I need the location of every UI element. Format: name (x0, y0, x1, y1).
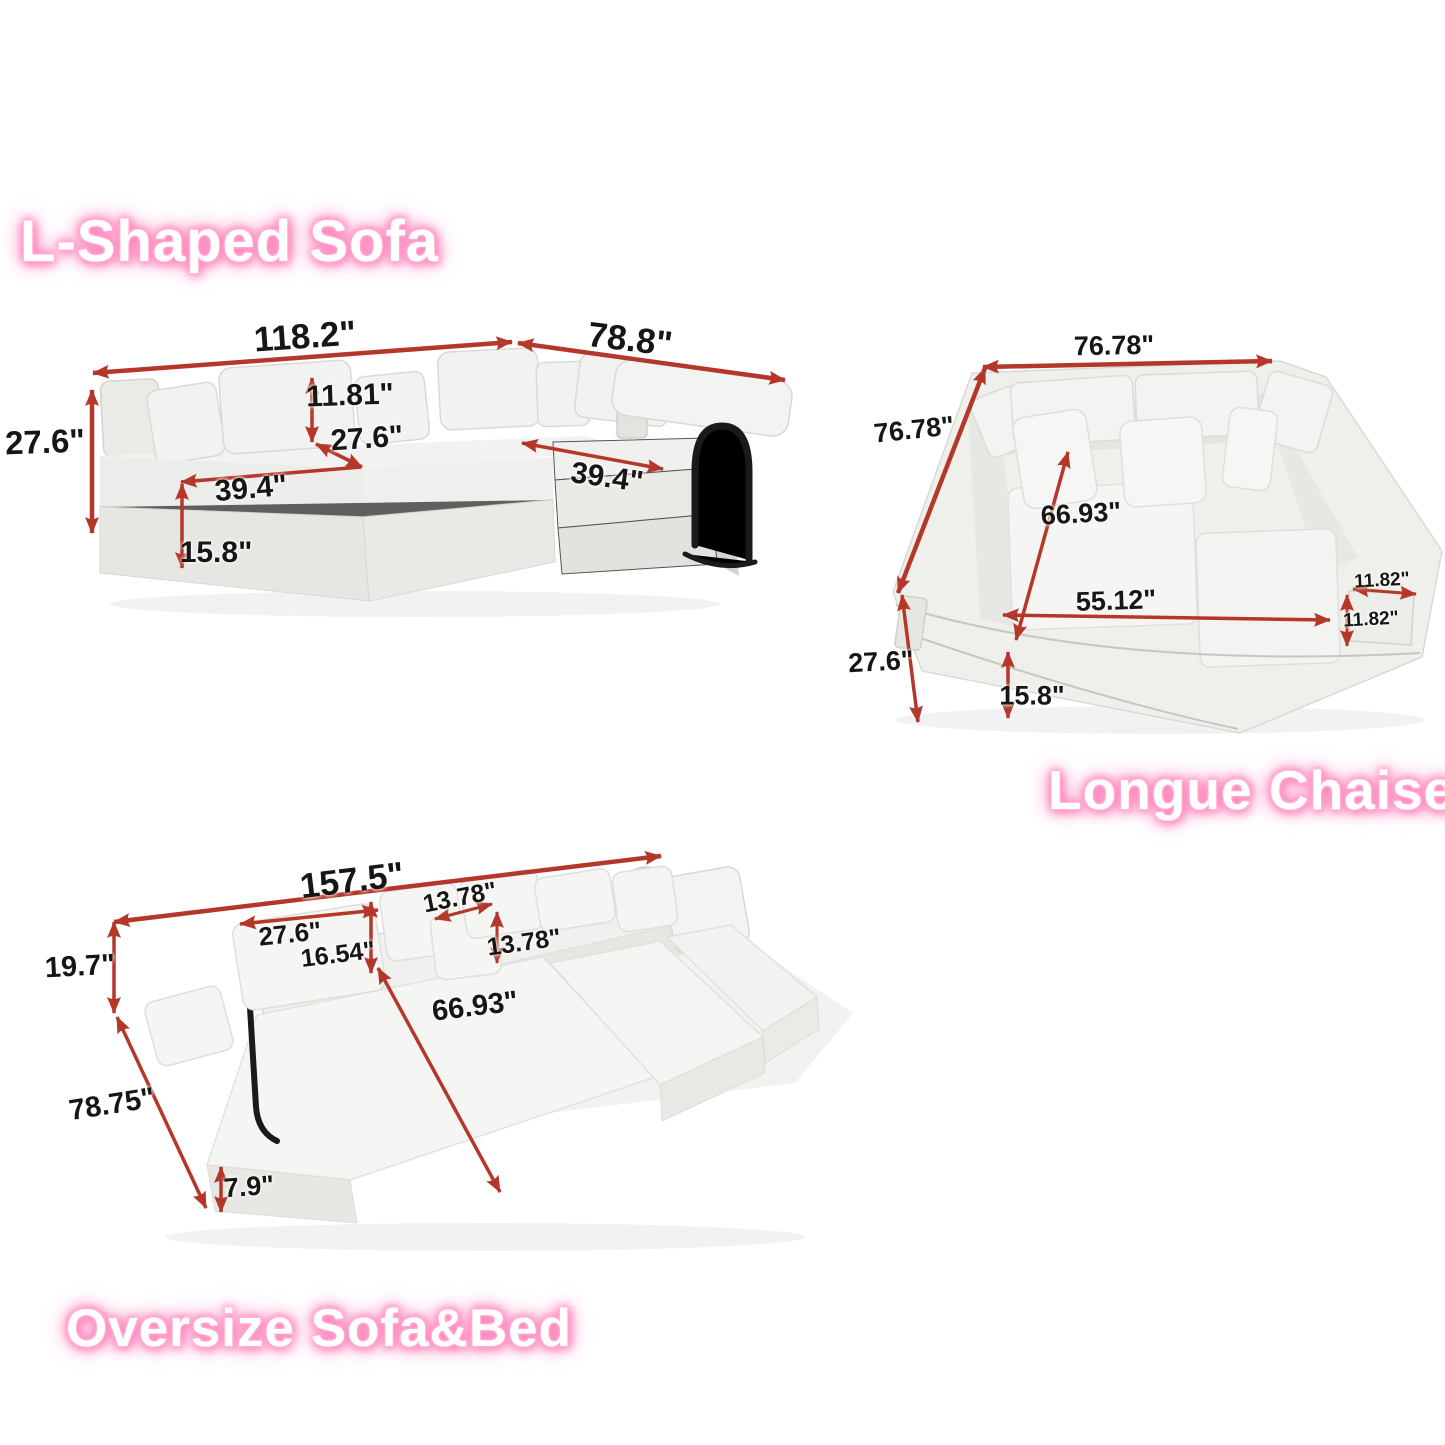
dim-c-inner-diagonal: 66.93" (1040, 496, 1122, 531)
metal-handle (695, 426, 749, 560)
dim-c-total-width: 76.78" (1074, 330, 1155, 362)
sofa-drawing (893, 361, 1442, 734)
section-title-oversize-sofa-bed: Oversize Sofa&Bed (66, 1298, 572, 1359)
dim-c-base-height: 15.8" (999, 681, 1064, 712)
dim-l-total-width: 118.2" (253, 313, 358, 360)
oversize-sofa-bed-illustration (95, 845, 905, 1265)
dim-l-base-height: 15.8" (180, 536, 253, 570)
dim-l-overall-height: 27.6" (4, 422, 85, 463)
dim-c-inner-width: 55.12" (1075, 584, 1156, 618)
dim-o-back-height: 19.7" (44, 949, 116, 986)
product-dimension-sheet: L-Shaped Sofa (0, 0, 1445, 1445)
dim-l-seat-depth: 27.6" (330, 420, 405, 459)
dim-c-overall-height: 27.6" (848, 645, 915, 679)
section-title-l-shaped-sofa: L-Shaped Sofa (20, 208, 439, 275)
sofa-drawing (100, 347, 794, 617)
dim-l-seat-width: 39.4" (213, 469, 288, 509)
section-title-longue-chaise: Longue Chaise (1048, 758, 1445, 822)
l-shaped-sofa-illustration (85, 330, 800, 625)
dim-c-armrest-width: 11.82" (1354, 569, 1411, 594)
dim-c-armrest-height: 11.82" (1343, 608, 1400, 633)
longue-chaise-illustration (860, 335, 1445, 735)
dim-o-mattress-height: 7.9" (223, 1170, 275, 1204)
dim-l-back-cushion-height: 11.81" (306, 377, 395, 414)
